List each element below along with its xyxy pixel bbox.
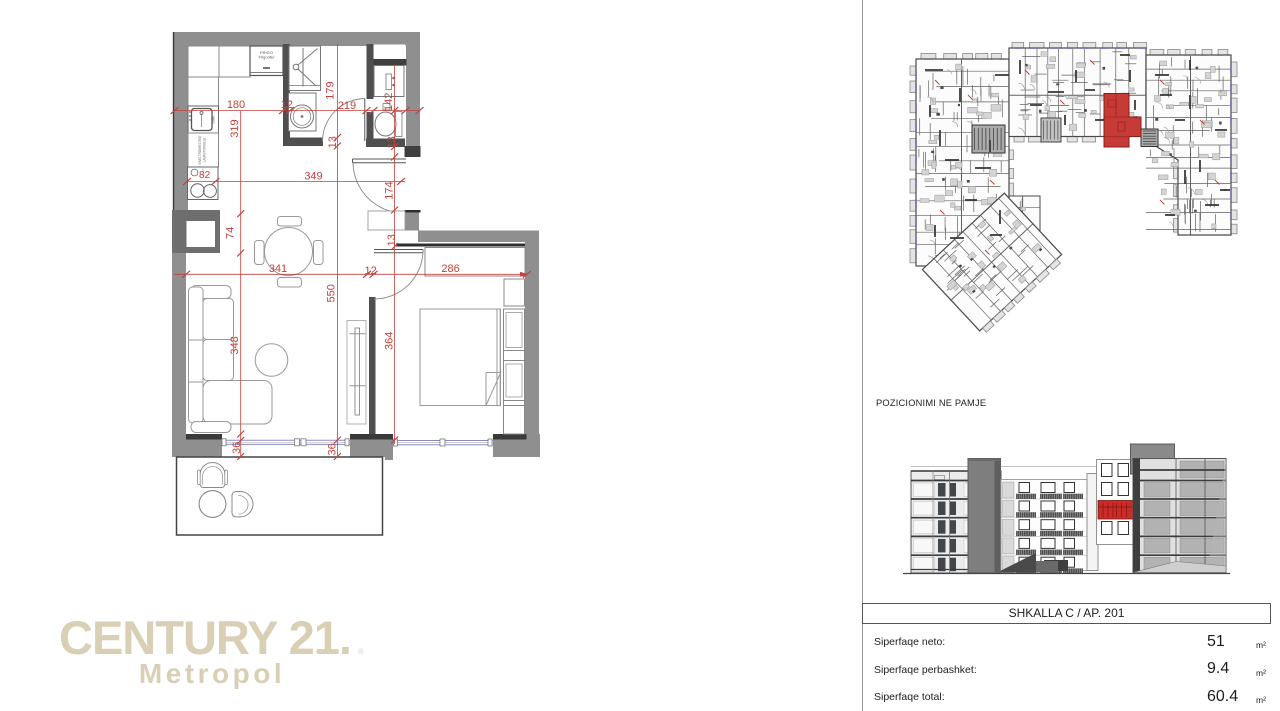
svg-text:12: 12 (281, 99, 293, 111)
svg-text:174: 174 (384, 181, 396, 199)
svg-text:36: 36 (231, 442, 243, 454)
svg-text:13: 13 (327, 136, 339, 148)
svg-text:Frigorifer: Frigorifer (258, 55, 275, 60)
svg-text:142: 142 (383, 93, 395, 111)
svg-text:219: 219 (338, 100, 356, 112)
svg-text:286: 286 (441, 263, 459, 275)
svg-text:180: 180 (227, 99, 245, 111)
svg-text:348: 348 (229, 336, 241, 354)
svg-text:13: 13 (386, 234, 398, 246)
svg-text:74: 74 (225, 227, 237, 239)
svg-text:12: 12 (364, 265, 376, 277)
svg-text:36: 36 (327, 443, 339, 455)
svg-text:550: 550 (326, 284, 338, 302)
svg-text:13: 13 (386, 136, 398, 148)
svg-text:364: 364 (384, 332, 396, 350)
svg-text:LAVASTOVIGLIE: LAVASTOVIGLIE (203, 138, 207, 162)
svg-text:82: 82 (199, 170, 211, 181)
svg-text:319: 319 (229, 119, 241, 137)
svg-text:ENELTROMESTIKE: ENELTROMESTIKE (198, 136, 202, 165)
svg-text:341: 341 (269, 263, 287, 275)
svg-text:349: 349 (304, 171, 322, 183)
svg-text:179: 179 (325, 81, 337, 99)
svg-text:SINK: SINK (212, 115, 216, 124)
